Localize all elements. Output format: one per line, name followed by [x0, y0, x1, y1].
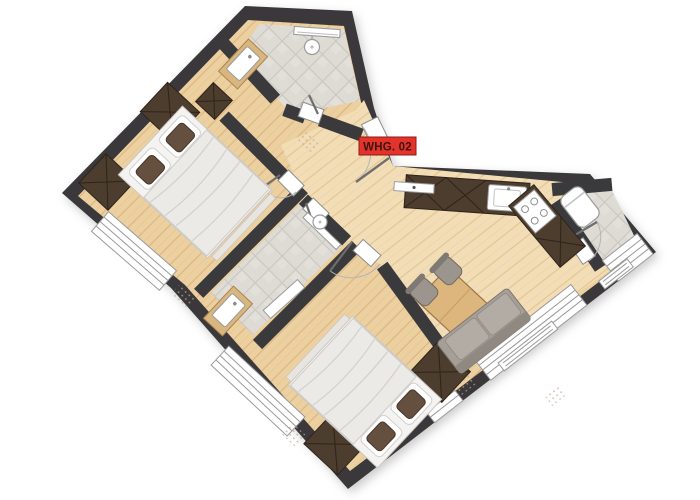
apartment-label-text: WHG. 02 — [363, 142, 412, 154]
floorplan: WHG. 02 — [0, 0, 700, 500]
floorplan-canvas: WHG. 02 — [0, 0, 700, 500]
apartment-label: WHG. 02 — [359, 137, 416, 155]
